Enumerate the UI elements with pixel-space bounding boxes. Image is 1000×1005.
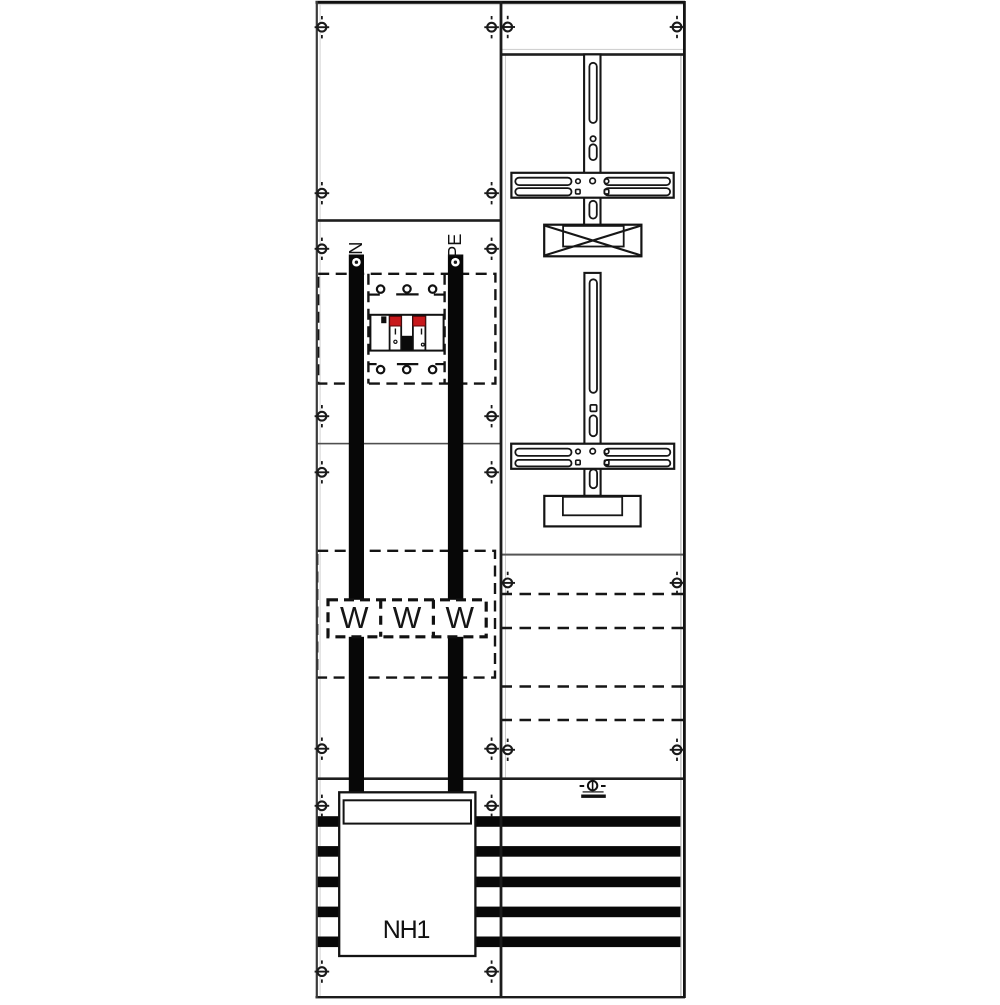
svg-text:W: W — [340, 602, 369, 635]
svg-text:PE: PE — [445, 234, 465, 258]
svg-text:N: N — [346, 242, 366, 255]
svg-text:NH1: NH1 — [383, 916, 430, 944]
svg-text:W: W — [445, 602, 474, 635]
svg-text:W: W — [393, 602, 422, 635]
